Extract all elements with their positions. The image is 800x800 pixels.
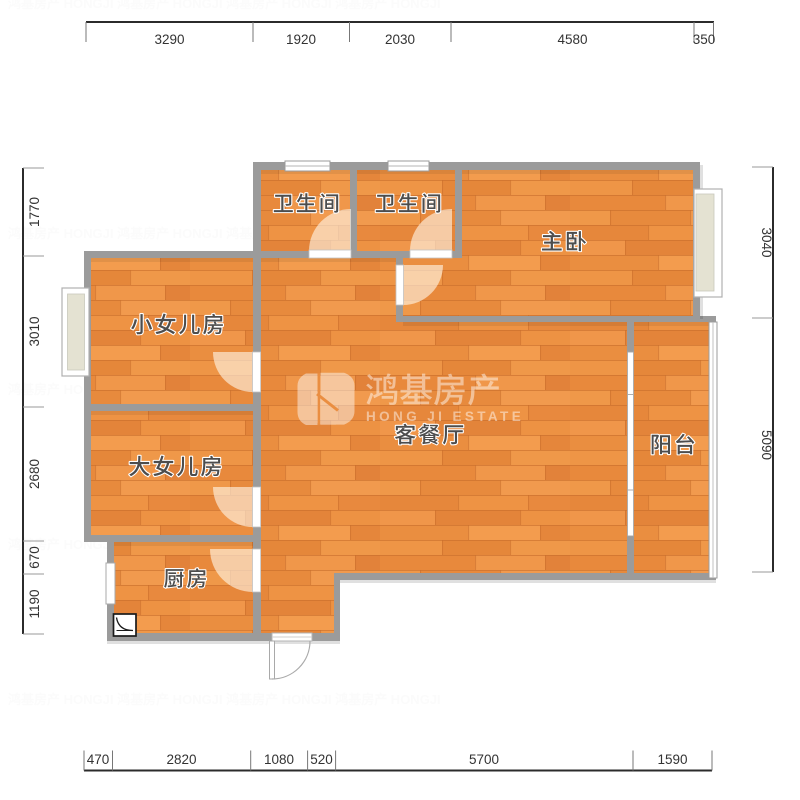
svg-text:2030: 2030 xyxy=(385,32,415,47)
svg-text:HONG JI ESTATE: HONG JI ESTATE xyxy=(366,409,524,424)
svg-text:1920: 1920 xyxy=(286,32,316,47)
svg-text:鸿基房产 HONGJI 鸿基房产 HONGJI 鸿基房产: 鸿基房产 HONGJI 鸿基房产 HONGJI 鸿基房产 HONGJI 鸿基房产… xyxy=(8,692,441,707)
svg-text:670: 670 xyxy=(27,546,42,569)
svg-text:3010: 3010 xyxy=(27,316,42,346)
svg-text:350: 350 xyxy=(693,32,716,47)
svg-text:470: 470 xyxy=(87,752,110,767)
svg-text:3040: 3040 xyxy=(759,227,774,257)
svg-text:3290: 3290 xyxy=(154,32,184,47)
svg-text:5090: 5090 xyxy=(759,430,774,460)
svg-text:鸿基房产 HONGJI 鸿基房产 HONGJI 鸿基房产: 鸿基房产 HONGJI 鸿基房产 HONGJI 鸿基房产 HONGJI 鸿基房产… xyxy=(8,0,441,11)
svg-text:5700: 5700 xyxy=(469,752,499,767)
svg-text:2820: 2820 xyxy=(166,752,196,767)
svg-text:520: 520 xyxy=(310,752,333,767)
svg-text:1770: 1770 xyxy=(27,197,42,227)
svg-text:1080: 1080 xyxy=(264,752,294,767)
svg-text:1190: 1190 xyxy=(27,589,42,618)
svg-text:4580: 4580 xyxy=(557,32,587,47)
svg-text:2680: 2680 xyxy=(27,459,42,489)
svg-text:1590: 1590 xyxy=(657,752,687,767)
